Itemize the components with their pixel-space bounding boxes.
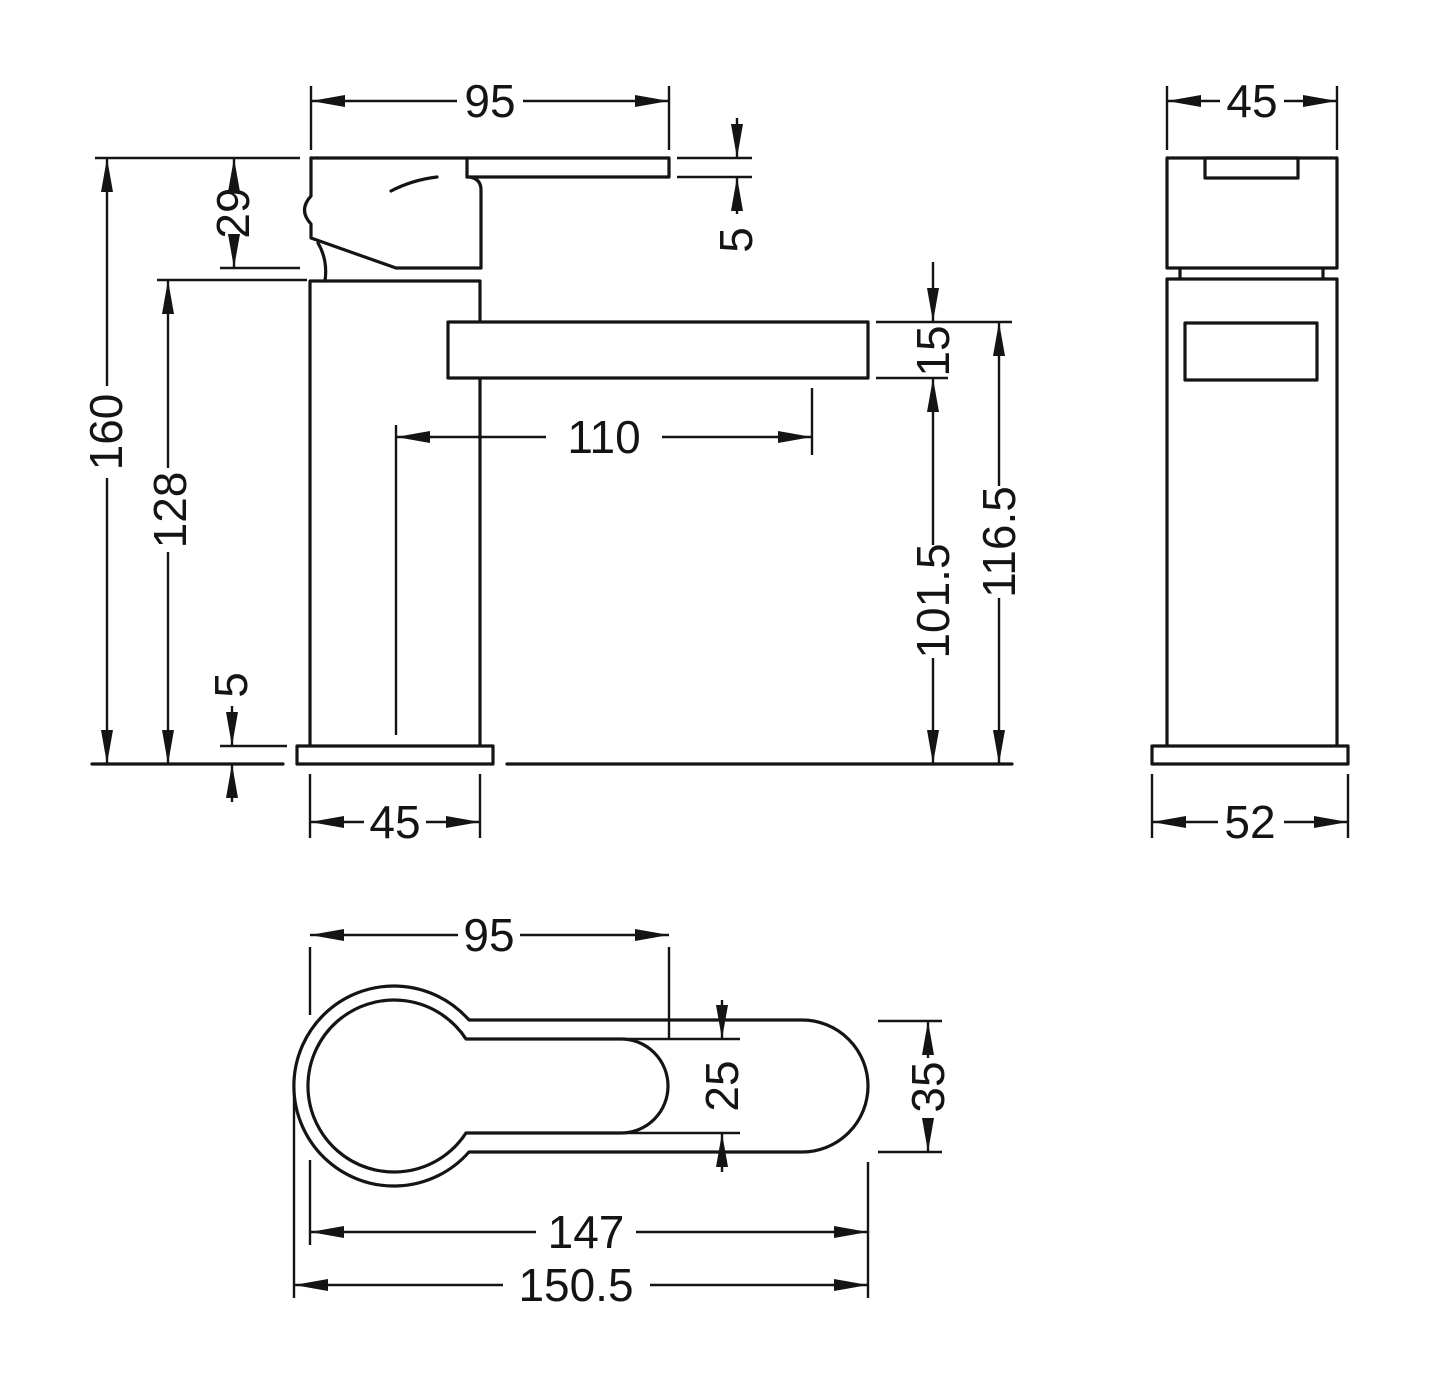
dim-top-spout-width: 35 (878, 1021, 954, 1152)
dim-front-handle-height: 29 (207, 158, 300, 268)
svg-text:45: 45 (369, 796, 420, 848)
svg-text:45: 45 (1226, 75, 1277, 127)
top-lever-outline (308, 1000, 668, 1172)
dim-front-overall-height: 160 (80, 158, 300, 764)
dim-front-spout-underside-height: 101.5 (907, 378, 959, 764)
front-base-plate (297, 746, 493, 764)
dim-front-spout-top-height: 116.5 (973, 322, 1025, 764)
dim-front-lever-tip-thickness: 5 (677, 118, 762, 253)
front-cartridge-dome-arc (318, 243, 326, 281)
dim-front-lever-length: 95 (311, 75, 669, 150)
svg-text:15: 15 (907, 325, 959, 376)
side-base-plate (1152, 746, 1348, 764)
dim-top-overall-reach: 150.5 (294, 1095, 868, 1311)
svg-text:95: 95 (464, 75, 515, 127)
side-neck (1180, 268, 1323, 279)
svg-text:128: 128 (144, 472, 196, 549)
svg-text:52: 52 (1224, 796, 1275, 848)
svg-text:110: 110 (567, 411, 640, 463)
side-spout-face (1185, 323, 1317, 380)
side-body-column (1167, 279, 1337, 746)
tap-drawing-svg: 95 5 29 160 128 (0, 0, 1445, 1380)
side-view: 45 52 (1152, 75, 1348, 848)
svg-text:147: 147 (548, 1206, 625, 1258)
technical-drawing-canvas: 95 5 29 160 128 (0, 0, 1445, 1380)
svg-text:95: 95 (463, 909, 514, 961)
top-body-spout-outline (294, 986, 868, 1186)
svg-text:5: 5 (710, 227, 762, 253)
svg-text:35: 35 (902, 1061, 954, 1112)
front-lever-plate (311, 158, 669, 177)
front-view: 95 5 29 160 128 (80, 75, 1025, 848)
dim-side-base-plate-depth: 52 (1152, 774, 1348, 848)
side-head (1167, 158, 1337, 268)
side-lever-end (1205, 158, 1298, 178)
dim-front-base-plate-height: 5 (205, 672, 287, 802)
dim-front-body-width: 45 (310, 774, 480, 848)
svg-text:101.5: 101.5 (907, 543, 959, 658)
front-handle-detail-arc (391, 177, 437, 191)
svg-text:116.5: 116.5 (973, 486, 1025, 598)
dim-front-spout-thickness: 15 (876, 262, 1012, 378)
svg-text:5: 5 (205, 672, 257, 698)
front-spout (448, 322, 868, 378)
top-view: 95 25 35 147 150.5 (294, 909, 954, 1311)
svg-text:160: 160 (80, 394, 132, 471)
dim-front-spout-reach: 110 (396, 388, 812, 735)
front-handle-body (305, 158, 482, 268)
svg-text:25: 25 (696, 1060, 748, 1111)
dim-side-head-depth: 45 (1167, 75, 1337, 150)
svg-text:29: 29 (207, 187, 259, 238)
dim-top-lever-width: 25 (621, 1000, 748, 1172)
svg-text:150.5: 150.5 (518, 1259, 633, 1311)
